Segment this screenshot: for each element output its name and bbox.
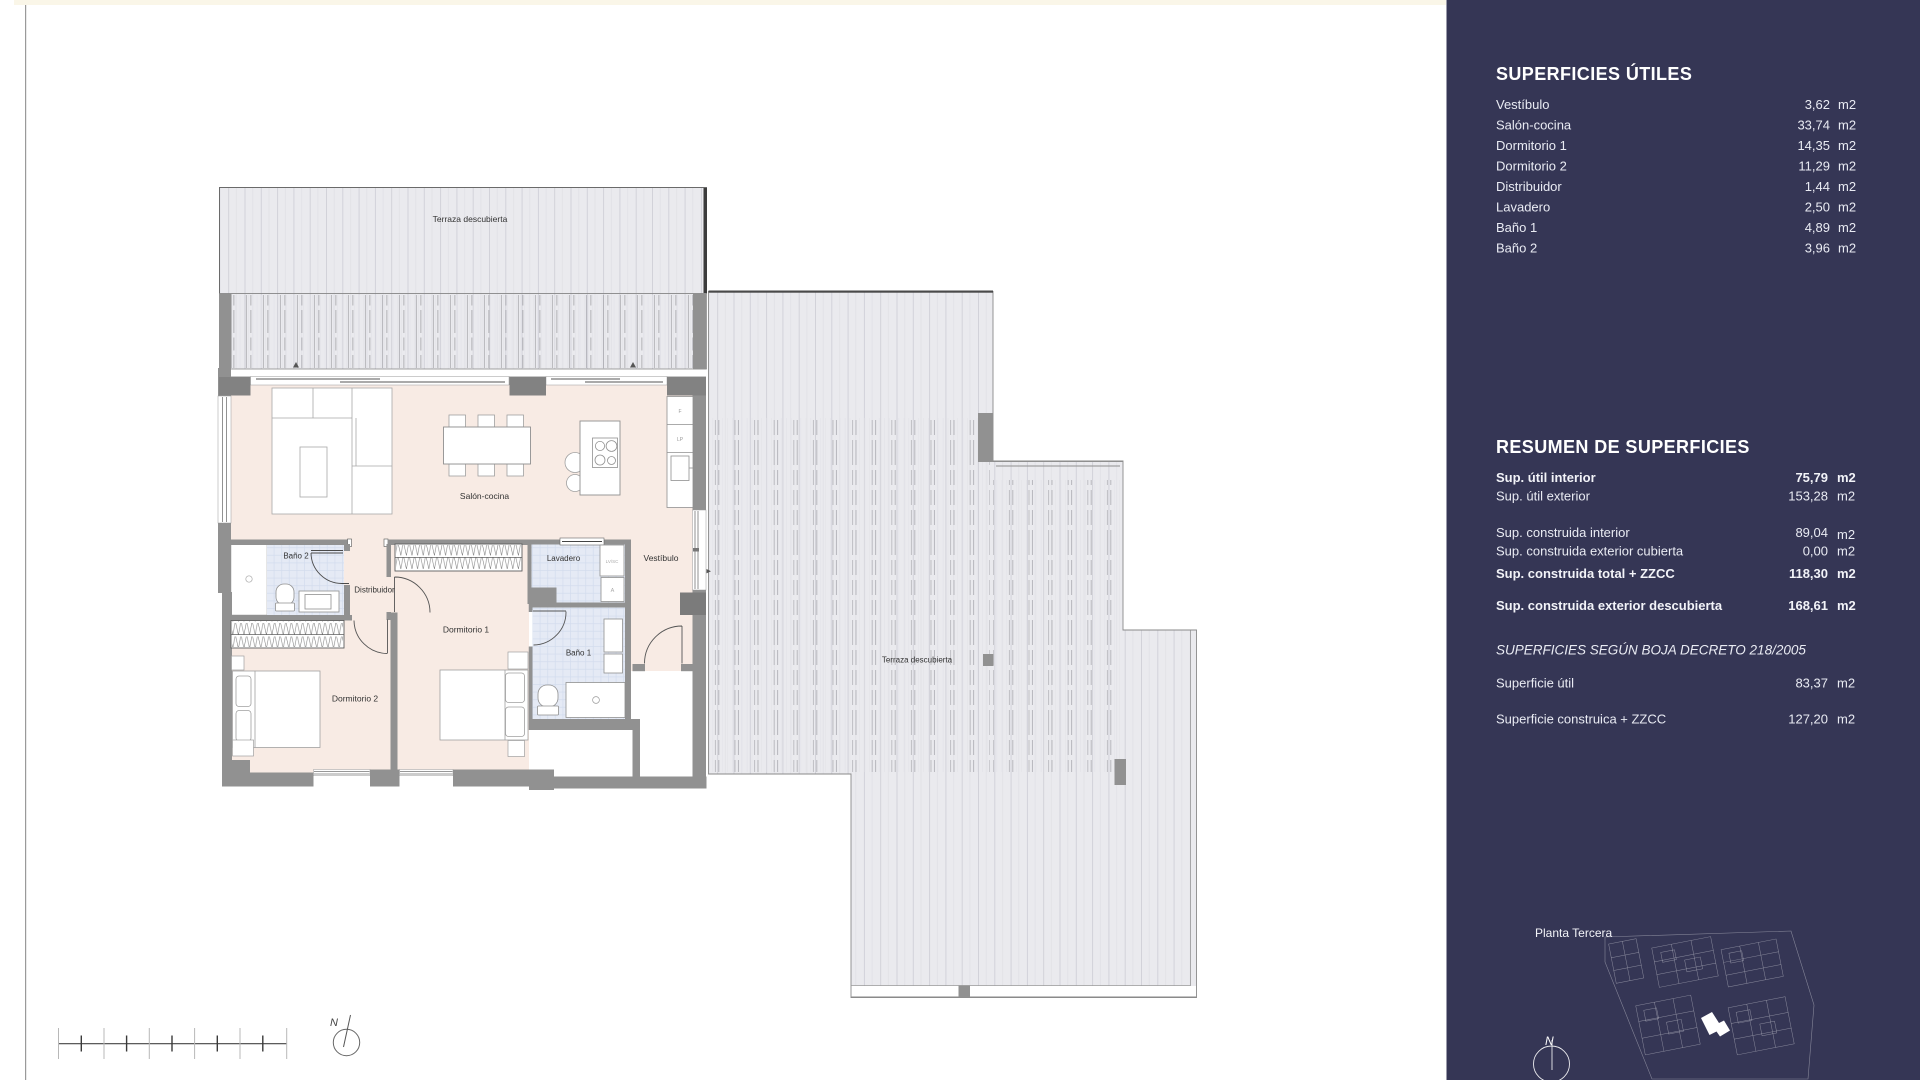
svg-text:Sup. construida total + ZZCC: Sup. construida total + ZZCC (1496, 566, 1675, 581)
svg-text:Baño 2: Baño 2 (283, 552, 309, 561)
svg-text:A: A (611, 588, 615, 594)
svg-text:m2: m2 (1837, 489, 1855, 504)
svg-text:83,37: 83,37 (1795, 676, 1828, 691)
svg-text:Sup. construida exterior descu: Sup. construida exterior descubierta (1496, 598, 1723, 613)
svg-text:75,79: 75,79 (1795, 470, 1828, 485)
svg-text:Terraza descubierta: Terraza descubierta (433, 214, 508, 224)
svg-text:N: N (330, 1017, 338, 1029)
svg-text:Planta Tercera: Planta Tercera (1535, 926, 1612, 940)
svg-text:m2: m2 (1838, 118, 1856, 133)
svg-text:4,89: 4,89 (1805, 220, 1830, 235)
svg-text:F: F (678, 409, 681, 415)
svg-text:153,28: 153,28 (1788, 489, 1828, 504)
svg-text:2,50: 2,50 (1805, 200, 1830, 215)
svg-text:Baño 1: Baño 1 (1496, 220, 1537, 235)
svg-text:Lavadero: Lavadero (1496, 200, 1550, 215)
svg-text:Baño 1: Baño 1 (566, 649, 592, 658)
svg-text:Distribuidor: Distribuidor (1496, 179, 1562, 194)
svg-text:33,74: 33,74 (1797, 118, 1830, 133)
svg-text:SUPERFICIES SEGÚN BOJA DECRETO: SUPERFICIES SEGÚN BOJA DECRETO 218/2005 (1496, 643, 1806, 658)
svg-text:11,29: 11,29 (1798, 159, 1830, 174)
svg-text:m2: m2 (1837, 676, 1855, 691)
svg-text:0,00: 0,00 (1803, 544, 1828, 559)
svg-text:127,20: 127,20 (1788, 712, 1828, 727)
svg-text:118,30: 118,30 (1789, 566, 1828, 581)
svg-text:3,62: 3,62 (1805, 97, 1830, 112)
svg-text:Sup. construida interior: Sup. construida interior (1496, 525, 1630, 540)
svg-text:1,44: 1,44 (1805, 179, 1830, 194)
svg-text:168,61: 168,61 (1788, 598, 1828, 613)
svg-text:Dormitorio 2: Dormitorio 2 (1496, 159, 1567, 174)
svg-text:Vestíbulo: Vestíbulo (644, 553, 679, 563)
svg-text:Baño 2: Baño 2 (1496, 241, 1537, 256)
svg-text:Dormitorio 1: Dormitorio 1 (443, 625, 490, 635)
svg-text:m2: m2 (1838, 241, 1856, 256)
svg-text:m2: m2 (1838, 179, 1856, 194)
svg-text:Salón-cocina: Salón-cocina (1496, 118, 1572, 133)
svg-text:14,35: 14,35 (1797, 138, 1830, 153)
svg-text:RESUMEN DE SUPERFICIES: RESUMEN DE SUPERFICIES (1496, 437, 1750, 457)
svg-text:LP: LP (677, 437, 684, 443)
svg-text:SUPERFICIES ÚTILES: SUPERFICIES ÚTILES (1496, 63, 1692, 84)
svg-text:Dormitorio 2: Dormitorio 2 (332, 694, 379, 704)
svg-text:Superficie construica + ZZCC: Superficie construica + ZZCC (1496, 712, 1666, 727)
svg-text:m2: m2 (1837, 527, 1855, 542)
svg-text:89,04: 89,04 (1795, 525, 1828, 540)
svg-text:m2: m2 (1837, 544, 1855, 559)
svg-text:Distribuidor: Distribuidor (354, 586, 395, 595)
svg-text:Dormitorio 1: Dormitorio 1 (1496, 138, 1567, 153)
svg-text:Salón-cocina: Salón-cocina (460, 491, 509, 501)
svg-text:Sup. útil exterior: Sup. útil exterior (1496, 489, 1591, 504)
svg-text:m2: m2 (1837, 598, 1856, 613)
svg-text:m2: m2 (1837, 712, 1855, 727)
svg-text:m2: m2 (1838, 97, 1856, 112)
svg-text:m2: m2 (1837, 566, 1856, 581)
svg-text:Sup. útil interior: Sup. útil interior (1496, 470, 1596, 485)
svg-text:Terraza descubierta: Terraza descubierta (882, 656, 953, 665)
svg-text:Superficie útil: Superficie útil (1496, 676, 1574, 691)
svg-text:m2: m2 (1838, 138, 1856, 153)
svg-text:3,96: 3,96 (1805, 241, 1830, 256)
svg-text:m2: m2 (1838, 220, 1856, 235)
svg-text:N: N (1545, 1034, 1554, 1048)
svg-text:LV/SC: LV/SC (606, 559, 619, 564)
svg-text:Sup. construida exterior cubie: Sup. construida exterior cubierta (1496, 544, 1684, 559)
svg-text:m2: m2 (1838, 159, 1856, 174)
svg-text:Vestíbulo: Vestíbulo (1496, 97, 1550, 112)
svg-text:m2: m2 (1837, 470, 1856, 485)
svg-text:m2: m2 (1838, 200, 1856, 215)
svg-text:Lavadero: Lavadero (547, 554, 581, 563)
